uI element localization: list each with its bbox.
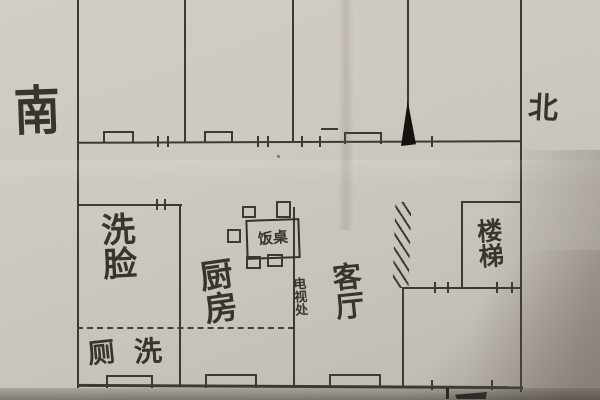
chair bbox=[246, 256, 261, 269]
door-mark bbox=[156, 199, 158, 210]
door-mark bbox=[167, 136, 169, 147]
dining-table-label: 饭桌 bbox=[257, 230, 288, 248]
window bbox=[329, 374, 381, 388]
door-mark bbox=[431, 136, 433, 147]
living-room-label: 客厅 bbox=[328, 261, 363, 322]
window bbox=[106, 375, 153, 388]
door-mark bbox=[267, 136, 269, 147]
paper-edge-shadow-bottom bbox=[0, 388, 600, 400]
door-mark bbox=[434, 282, 436, 293]
compass-south-label: 南 bbox=[13, 84, 61, 140]
door-mark bbox=[511, 282, 513, 293]
tv-spot-label: 电视处 bbox=[291, 277, 307, 317]
cutoff-mark bbox=[446, 388, 449, 399]
door-mark bbox=[301, 136, 303, 147]
compass-north-label: 北 bbox=[527, 93, 559, 125]
washroom-label: 洗脸 bbox=[96, 211, 134, 281]
stairs-top-wall bbox=[461, 201, 521, 203]
paper-crease-vertical bbox=[338, 0, 354, 230]
window bbox=[344, 132, 382, 144]
outer-wall-left bbox=[77, 0, 79, 388]
door-mark bbox=[319, 136, 321, 147]
door-mark bbox=[157, 136, 159, 147]
outer-wall-right bbox=[520, 0, 522, 392]
floor-plan-paper: 饭桌 南 北 洗脸 厨房 客厅 楼梯 厕 洗 电视处 bbox=[0, 0, 600, 400]
paper-speck bbox=[277, 155, 280, 158]
toilet-label: 厕 bbox=[87, 339, 117, 369]
main-corridor-wall bbox=[77, 140, 522, 144]
ink-blot bbox=[401, 101, 416, 146]
stairs-bottom-wall bbox=[402, 287, 521, 289]
door-mark bbox=[496, 282, 498, 293]
dashed-partition-wall bbox=[77, 327, 294, 329]
washroom-right-wall bbox=[179, 204, 181, 387]
chair bbox=[227, 229, 241, 243]
hatched-wall bbox=[393, 202, 412, 289]
kitchen-label: 厨房 bbox=[195, 256, 238, 326]
window bbox=[103, 131, 134, 143]
door-mark bbox=[447, 282, 449, 293]
wash-area-label: 洗 bbox=[133, 337, 162, 367]
paper-shadow-right bbox=[470, 150, 600, 400]
cutoff-mark bbox=[455, 392, 487, 399]
window bbox=[204, 131, 233, 143]
door-mark bbox=[257, 136, 259, 147]
door-mark bbox=[164, 199, 166, 210]
hall-divider-wall bbox=[402, 288, 404, 386]
stairs-left-wall bbox=[461, 201, 463, 289]
chair bbox=[242, 206, 256, 218]
washroom-top-wall bbox=[77, 204, 182, 206]
window bbox=[205, 374, 257, 388]
short-stroke-mark bbox=[321, 128, 338, 130]
chair bbox=[276, 201, 291, 218]
chair bbox=[267, 254, 283, 267]
door-mark bbox=[431, 380, 433, 390]
stairs-label: 楼梯 bbox=[474, 217, 503, 269]
door-mark bbox=[491, 380, 493, 390]
paper-crease-horizontal bbox=[0, 160, 600, 200]
bedroom-divider-wall-1 bbox=[184, 0, 186, 143]
bedroom-divider-wall-2 bbox=[292, 0, 294, 143]
